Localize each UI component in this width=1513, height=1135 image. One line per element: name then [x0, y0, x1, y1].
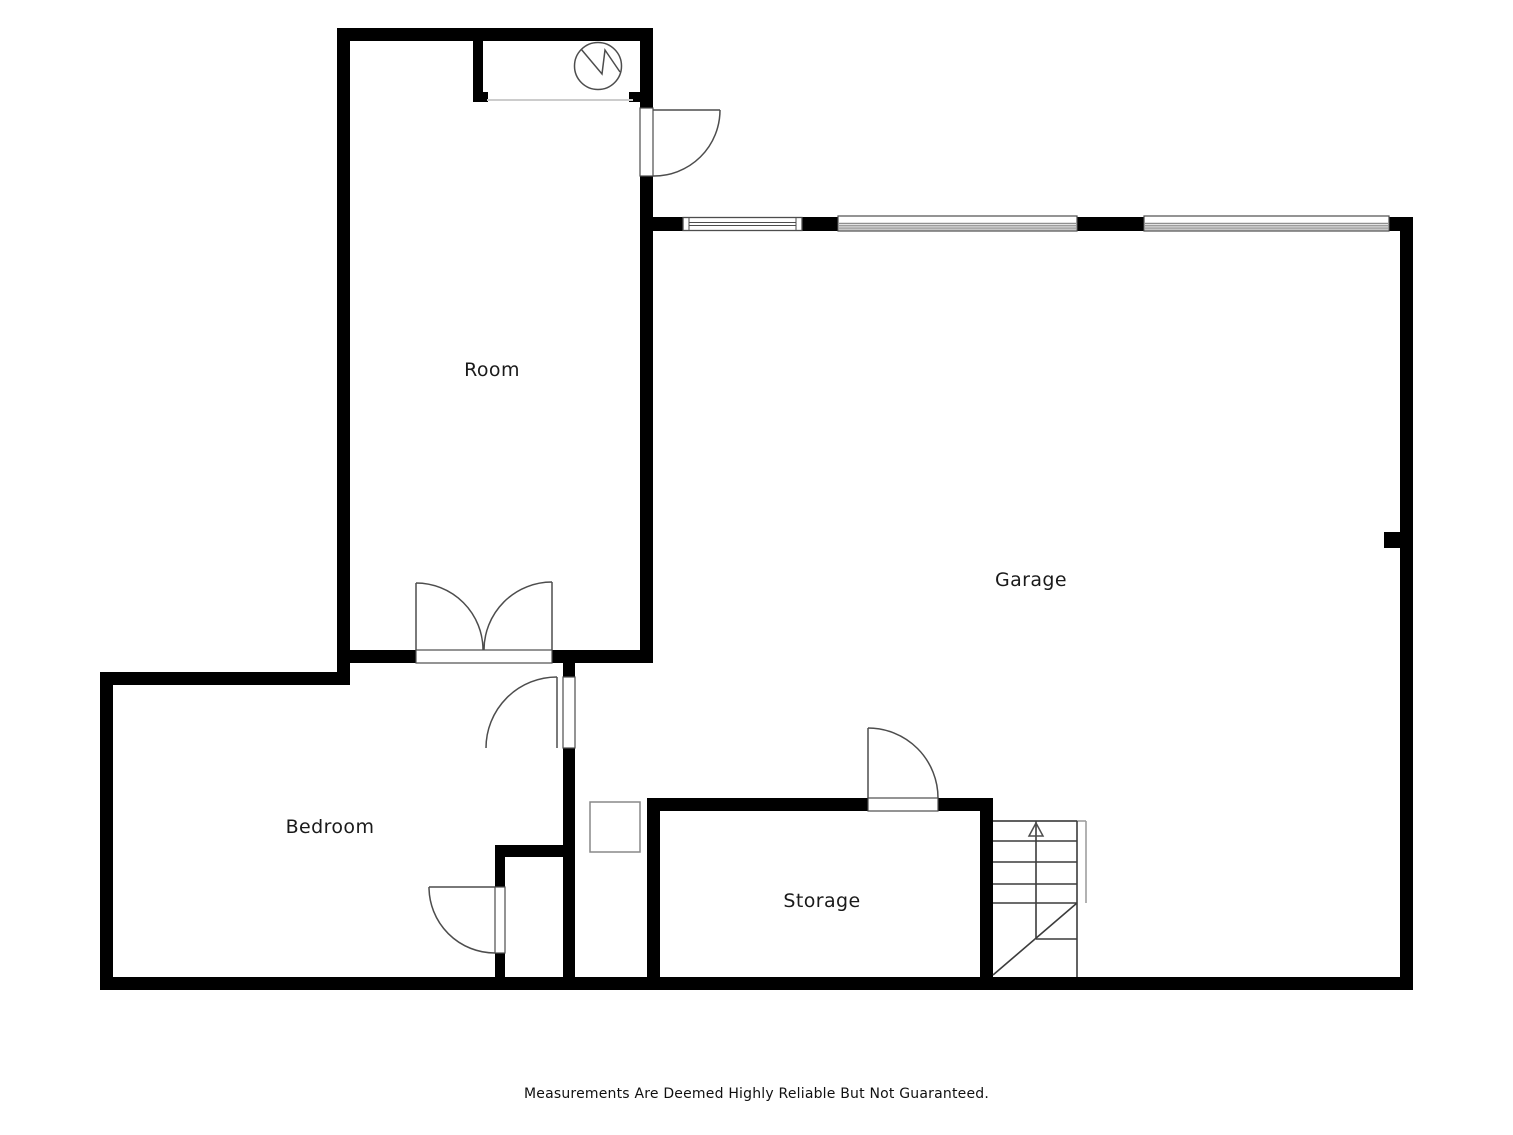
wall-garage-top-a: [653, 217, 683, 231]
wall-niche-foot-left: [473, 92, 488, 102]
door-swing-arc: [429, 887, 495, 953]
door-swing-arc: [868, 728, 938, 798]
wall-bedroom-top: [100, 672, 350, 685]
door-bedroom-closet: [429, 887, 505, 953]
room-label-bedroom: Bedroom: [286, 816, 375, 838]
garage-door-2: [1144, 216, 1389, 231]
wall-right-exterior: [1400, 217, 1413, 990]
double-door-room-bedroom: [416, 582, 552, 663]
wall-garage-top-b: [802, 217, 838, 231]
wall-right-stub: [1384, 532, 1400, 548]
door-storage: [868, 728, 938, 811]
wall-garage-top-c: [1077, 217, 1144, 231]
staircase: [993, 821, 1086, 977]
wall-room-right-upper: [640, 28, 653, 108]
wall-closet-left-upper: [495, 857, 505, 887]
window-frame: [683, 218, 802, 231]
wall-room-right-lower: [640, 176, 653, 663]
wall-bottom-exterior: [100, 977, 1413, 990]
door-swing-arc-left: [416, 583, 483, 650]
wall-hall-upper: [563, 663, 575, 677]
utility-box: [590, 802, 640, 852]
wall-hall-lower: [563, 748, 575, 977]
garage-door-1: [838, 216, 1077, 231]
door-swing-arc-right: [484, 582, 552, 650]
room-label-room: Room: [464, 359, 520, 381]
door-swing-arc: [486, 677, 557, 748]
door-swing-arc: [653, 110, 720, 176]
window-garage: [683, 218, 802, 231]
room-label-garage: Garage: [995, 569, 1067, 591]
water-heater-symbol: [575, 43, 622, 90]
floorplan-canvas: Room Garage Bedroom Storage Measurements…: [0, 0, 1513, 1135]
walls: [100, 28, 1413, 990]
wall-room-left: [337, 28, 350, 685]
wall-storage-left: [647, 798, 660, 977]
door-room-exterior: [640, 108, 720, 176]
door-opening: [495, 887, 505, 953]
door-opening: [563, 677, 575, 748]
door-opening: [640, 108, 653, 176]
wall-room-bottom-right: [552, 650, 653, 663]
floorplan-drawing: [0, 0, 1513, 1135]
wall-closet-left-lower: [495, 953, 505, 977]
wall-room-bottom-left: [337, 650, 416, 663]
door-opening: [416, 650, 552, 663]
wall-closet-top: [495, 845, 575, 857]
wall-storage-right: [980, 798, 993, 977]
wall-storage-top-left: [647, 798, 868, 811]
wall-room-top: [337, 28, 653, 41]
wall-left-exterior: [100, 672, 113, 990]
wall-niche-stub: [473, 41, 483, 94]
disclaimer-text: Measurements Are Deemed Highly Reliable …: [0, 1086, 1513, 1102]
door-opening: [868, 798, 938, 811]
door-bedroom-hall: [486, 677, 575, 748]
room-label-storage: Storage: [783, 890, 860, 912]
